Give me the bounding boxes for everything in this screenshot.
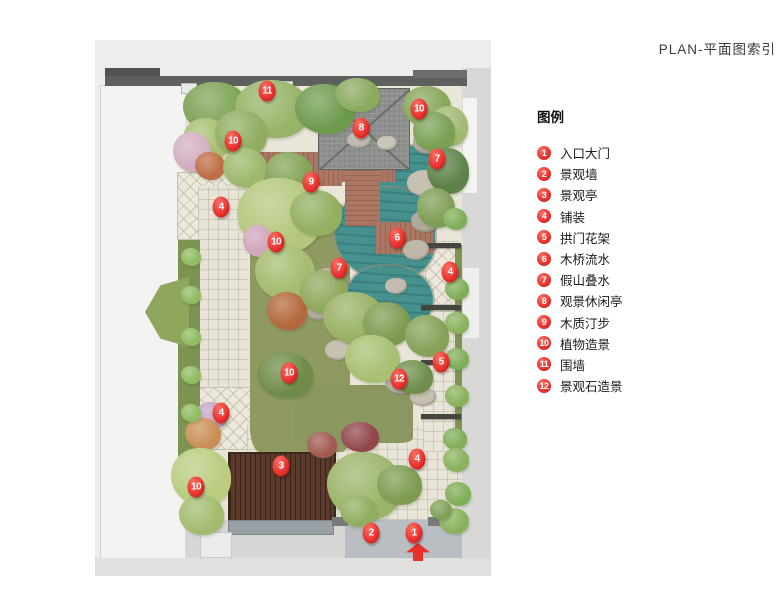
pergola-bar: [421, 305, 461, 310]
legend-number-badge: 4: [537, 209, 551, 223]
legend-number-badge: 2: [537, 167, 551, 181]
legend-label: 木质汀步: [560, 313, 610, 332]
legend-number-badge: 12: [537, 379, 551, 393]
tree-canopy: [181, 404, 201, 422]
pavilion-bench: [228, 520, 334, 535]
legend-label: 木桥流水: [560, 249, 610, 268]
plan-marker-2: 2: [363, 523, 380, 544]
legend-label: 景观墙: [560, 164, 598, 183]
legend-item: 2景观墙: [537, 163, 623, 184]
legend-label: 景观石造景: [560, 376, 623, 395]
legend-item: 8观景休闲亭: [537, 290, 623, 311]
tree-canopy: [335, 78, 380, 112]
legend-label: 观景休闲亭: [560, 291, 623, 310]
legend-label: 入口大门: [560, 143, 610, 162]
legend-number-badge: 8: [537, 294, 551, 308]
plan-marker-4: 4: [442, 262, 459, 283]
plan-marker-12: 12: [391, 369, 408, 390]
tree-canopy: [290, 190, 342, 236]
legend-label: 假山叠水: [560, 270, 610, 289]
plan-marker-7: 7: [429, 149, 446, 170]
legend-item: 12景观石造景: [537, 375, 623, 396]
legend-label: 围墙: [560, 355, 585, 374]
plan-marker-4: 4: [213, 197, 230, 218]
page-title: PLAN-平面图索引: [516, 38, 776, 58]
legend-item: 4铺装: [537, 206, 623, 227]
tree-canopy: [443, 208, 467, 230]
plan-marker-4: 4: [213, 403, 230, 424]
legend-number-badge: 6: [537, 252, 551, 266]
legend-number-badge: 3: [537, 188, 551, 202]
plan-marker-9: 9: [303, 172, 320, 193]
legend-item: 7假山叠水: [537, 269, 623, 290]
tree-canopy: [179, 495, 224, 535]
legend-heading: 图例: [537, 106, 623, 126]
legend-item: 6木桥流水: [537, 248, 623, 269]
tree-canopy: [445, 312, 469, 334]
plan-marker-5: 5: [433, 352, 450, 373]
legend-number-badge: 5: [537, 230, 551, 244]
legend-item: 9木质汀步: [537, 312, 623, 333]
pergola-bar: [421, 414, 461, 419]
tree-canopy: [181, 286, 201, 304]
plan-marker-8: 8: [353, 118, 370, 139]
tree-canopy: [443, 448, 469, 472]
legend-label: 植物造景: [560, 334, 610, 353]
legend: 图例 1入口大门2景观墙3景观亭4铺装5拱门花架6木桥流水7假山叠水8观景休闲亭…: [537, 106, 623, 396]
plan-marker-4: 4: [409, 449, 426, 470]
legend-number-badge: 11: [537, 357, 551, 371]
legend-label: 铺装: [560, 207, 585, 226]
tree-canopy: [307, 432, 337, 458]
plan-marker-3: 3: [273, 456, 290, 477]
plan-marker-6: 6: [389, 228, 406, 249]
tree-canopy: [341, 422, 379, 452]
garden-plan: 111081079410674512104310421: [95, 40, 491, 576]
plan-marker-1: 1: [406, 523, 423, 544]
plan-marker-10: 10: [281, 363, 298, 384]
plan-marker-10: 10: [411, 99, 428, 120]
legend-label: 拱门花架: [560, 228, 610, 247]
plan-marker-10: 10: [268, 232, 285, 253]
paving-white-square: [200, 532, 232, 558]
legend-label: 景观亭: [560, 185, 598, 204]
plan-marker-10: 10: [188, 477, 205, 498]
plan-marker-11: 11: [259, 81, 276, 102]
tree-canopy: [443, 428, 467, 450]
legend-number-badge: 10: [537, 336, 551, 350]
tree-canopy: [181, 366, 201, 384]
tree-canopy: [377, 465, 422, 505]
legend-number-badge: 1: [537, 146, 551, 160]
legend-number-badge: 7: [537, 273, 551, 287]
plan-marker-7: 7: [331, 258, 348, 279]
tree-canopy: [185, 418, 221, 450]
page: PLAN-平面图索引: [0, 0, 782, 590]
legend-item: 1入口大门: [537, 142, 623, 163]
perimeter-wall-step: [413, 70, 467, 78]
tree-canopy: [445, 385, 469, 407]
legend-list: 1入口大门2景观墙3景观亭4铺装5拱门花架6木桥流水7假山叠水8观景休闲亭9木质…: [537, 142, 623, 396]
tree-canopy: [181, 248, 201, 266]
plan-marker-10: 10: [225, 131, 242, 152]
bottom-band: [95, 558, 491, 576]
tree-canopy: [430, 500, 452, 520]
tree-canopy: [195, 152, 225, 180]
tree-canopy: [181, 328, 201, 346]
legend-item: 3景观亭: [537, 184, 623, 205]
legend-item: 5拱门花架: [537, 227, 623, 248]
legend-number-badge: 9: [537, 315, 551, 329]
legend-item: 11围墙: [537, 354, 623, 375]
legend-item: 10植物造景: [537, 333, 623, 354]
